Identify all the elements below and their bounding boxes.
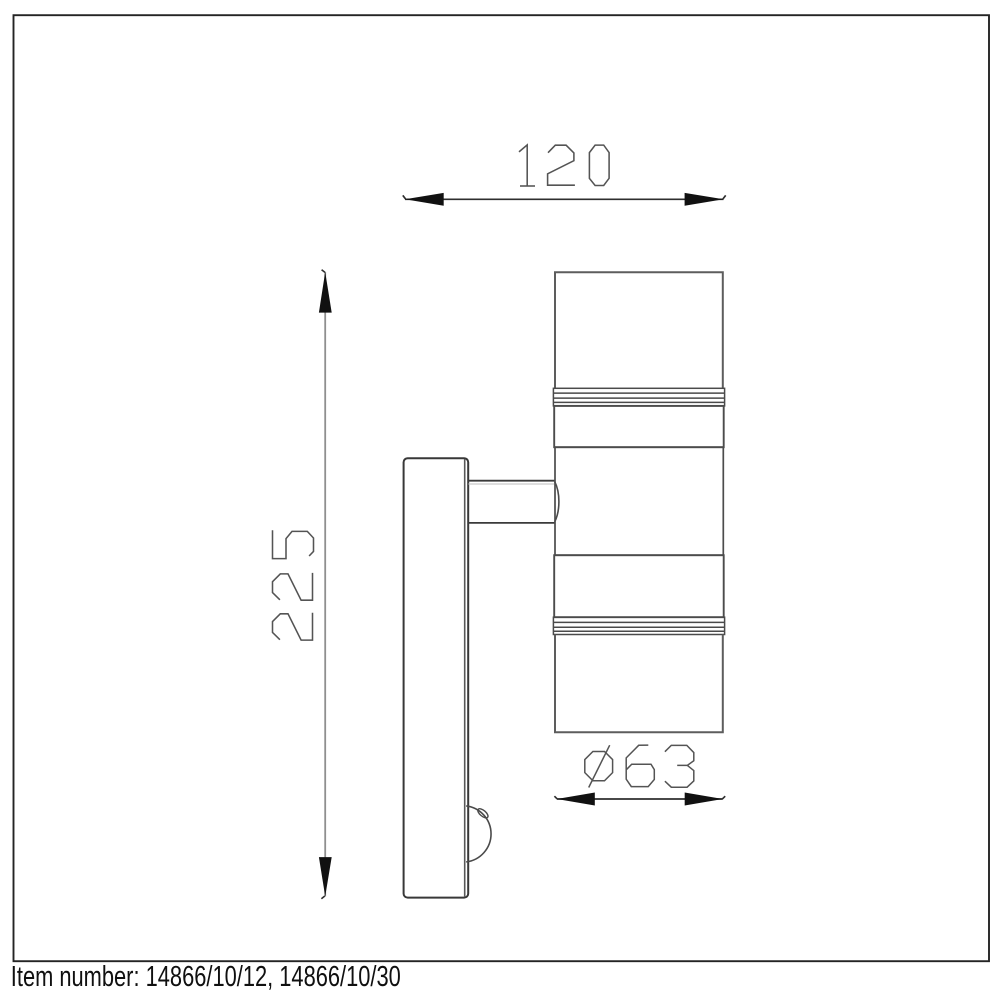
svg-text:Item number: 14866/10/12, 1486: Item number: 14866/10/12, 14866/10/30 xyxy=(11,961,401,992)
